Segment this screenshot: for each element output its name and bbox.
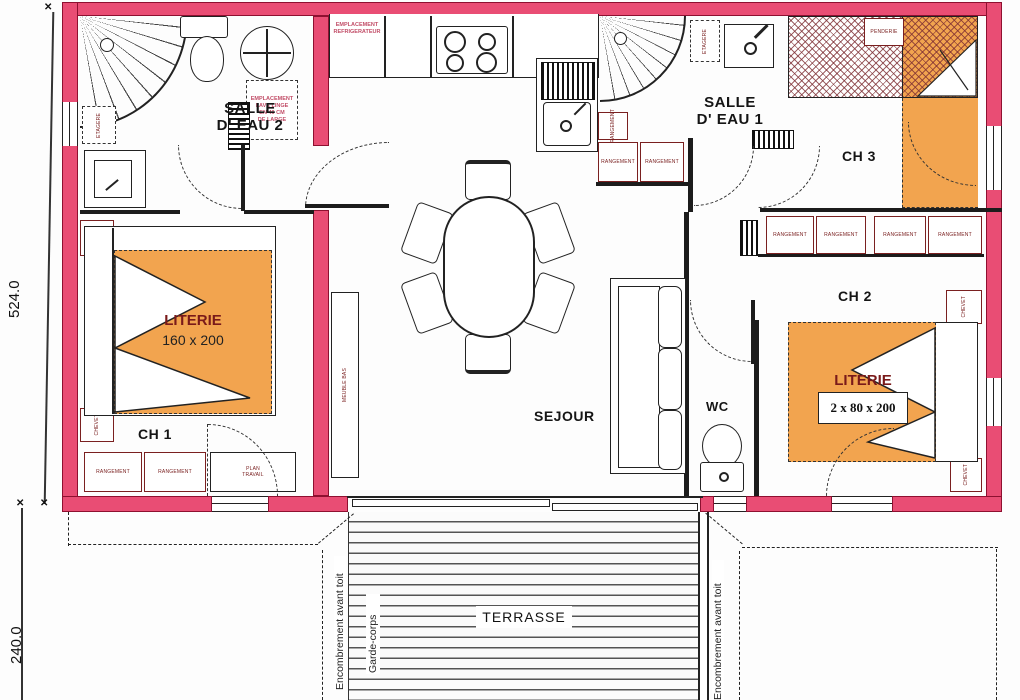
roof-overhang-line [68, 512, 69, 546]
guardrail-label: Garde-corps [366, 594, 380, 674]
roof-overhang-line [322, 550, 323, 700]
bed-size-box-ch2: 2 x 80 x 200 [818, 392, 908, 424]
room-label-terrasse: TERRASSE [482, 609, 565, 625]
dimension-tick: ✕ [40, 498, 48, 509]
toilet-button [719, 472, 729, 482]
terrace-label-box: TERRASSE [476, 606, 572, 628]
bed-size-ch2: 2 x 80 x 200 [831, 400, 896, 416]
room-label-wc: WC [706, 400, 729, 415]
roof-overhang-line [739, 551, 740, 700]
bed-label-ch2: LITERIE [798, 372, 928, 389]
overhang-label-left: Encombrement avant toit [334, 556, 346, 690]
roof-overhang-line [742, 547, 998, 548]
dimension-524: 524.0 [6, 248, 23, 318]
floor-plan: EMPLACEMENTLAVE LINGE EN 40 CMDE LARGE E… [0, 0, 1020, 700]
dimension-240: 240.0 [8, 594, 25, 664]
door-leaf [751, 300, 755, 364]
dimension-tick: ✕ [16, 498, 24, 509]
dimension-tick: ✕ [44, 2, 52, 13]
overhang-label-right: Encombrement avant toit [712, 560, 724, 700]
roof-overhang-line [68, 544, 318, 545]
terrace-edge [698, 512, 709, 700]
roof-overhang-line [996, 549, 997, 700]
